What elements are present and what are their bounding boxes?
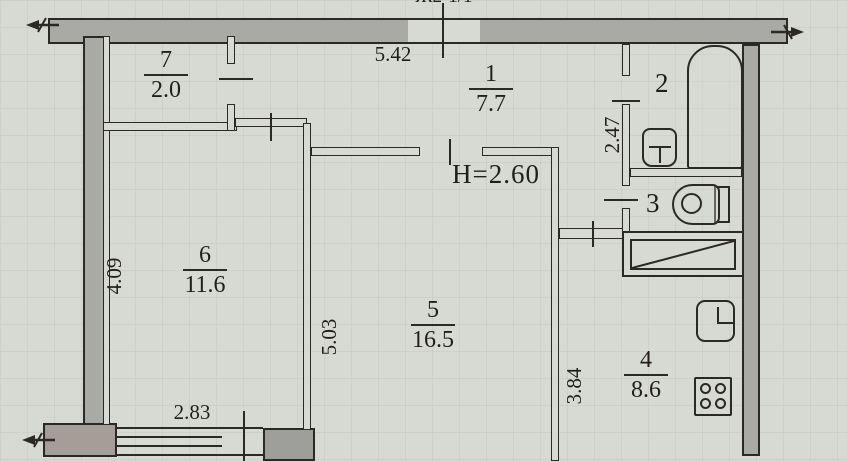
dim-bath-2-47: 2.47 [601,105,623,165]
wall-room7-bottom [103,122,237,131]
wall-bath-wc [630,168,742,177]
room-1-number: 1 [485,62,497,87]
room-5-number: 5 [427,298,439,323]
dim-kitchen-3-84: 3.84 [563,356,585,416]
room-6-label: 6 11.6 [175,243,235,298]
cabinet-diagonal [632,241,734,268]
wall-top-right [478,18,788,44]
stove-symbol [694,377,732,416]
room-6-number: 6 [199,243,211,268]
entrance-opening [408,18,480,44]
wall-kitchen-top [559,228,630,239]
wall-break-arrow-bottom-left [20,431,56,449]
dim-window-2-83: 2.83 [162,402,222,423]
cabinet-inner [630,239,736,270]
room-5-area: 16.5 [412,328,454,353]
kitchen-tap-bar [717,322,734,324]
room-2-number: 2 [655,70,669,97]
door-tick-wc [604,199,638,201]
room-1-area: 7.7 [476,92,506,117]
corner-label: Ж2-1/1 [404,0,484,6]
window-line-1 [117,427,222,429]
dim-left-4-09: 4.09 [103,246,125,306]
entrance-leader-line [442,3,444,58]
wall-stub-bottom-room6 [263,428,315,461]
floor-plan-image: Ж2-1/1 5.42 7 2.0 1 7.7 2 2.47 3 H=2.60 … [0,0,847,461]
window-line-4 [117,454,222,456]
door-tick-room5 [449,139,451,165]
wall-hall-bath-upper [622,44,630,76]
burner-2 [715,383,726,394]
dim-top-5-42: 5.42 [363,44,423,65]
wall-room5-top-left [311,147,420,156]
room-6-rule [183,269,227,271]
wall-room7-right-upper [227,36,235,64]
burner-1 [700,383,711,394]
wall-room5-right [551,147,559,461]
window-line-3 [117,445,222,447]
room-1-label: 1 7.7 [461,62,521,117]
window-line-2 [117,436,222,438]
balcony-door-divider [243,411,245,461]
burner-3 [700,398,711,409]
wall-room7-right-lower [227,104,235,131]
door-tick-room6 [270,113,272,141]
door-tick-kitchen [592,221,594,247]
wall-hall-bath-lower [622,208,630,233]
ceiling-height-note: H=2.60 [452,161,540,188]
toilet-bowl-symbol [672,184,720,225]
wall-room5-top-right [482,147,557,156]
bath-sink-symbol [642,128,677,167]
wall-inner-left-face [103,36,110,425]
room-5-rule [411,324,455,326]
door-tick-bath [612,100,640,102]
wall-break-arrow-top-left [24,16,60,34]
wall-exterior-left [83,36,105,425]
kitchen-sink-symbol [696,300,735,342]
room-7-area: 2.0 [151,78,181,103]
room-7-number: 7 [160,48,172,73]
dim-room5-5-03: 5.03 [318,307,340,367]
bathtub-symbol [687,45,743,169]
wall-exterior-right [742,44,760,456]
room-7-rule [144,74,188,76]
room-4-label: 4 8.6 [616,348,676,403]
sink-tap-stem [659,147,661,163]
room-6-area: 11.6 [184,273,225,298]
room-3-number: 3 [646,190,660,217]
room-4-area: 8.6 [631,378,661,403]
wall-room6-right [303,123,311,430]
room-7-label: 7 2.0 [136,48,196,103]
wall-break-arrow-top-right [770,23,806,41]
burner-4 [715,398,726,409]
room-1-rule [469,88,513,90]
room-4-number: 4 [640,348,652,373]
room-4-rule [624,374,668,376]
room-5-label: 5 16.5 [403,298,463,353]
toilet-circle [681,193,702,214]
door-tick-room7 [219,78,253,80]
